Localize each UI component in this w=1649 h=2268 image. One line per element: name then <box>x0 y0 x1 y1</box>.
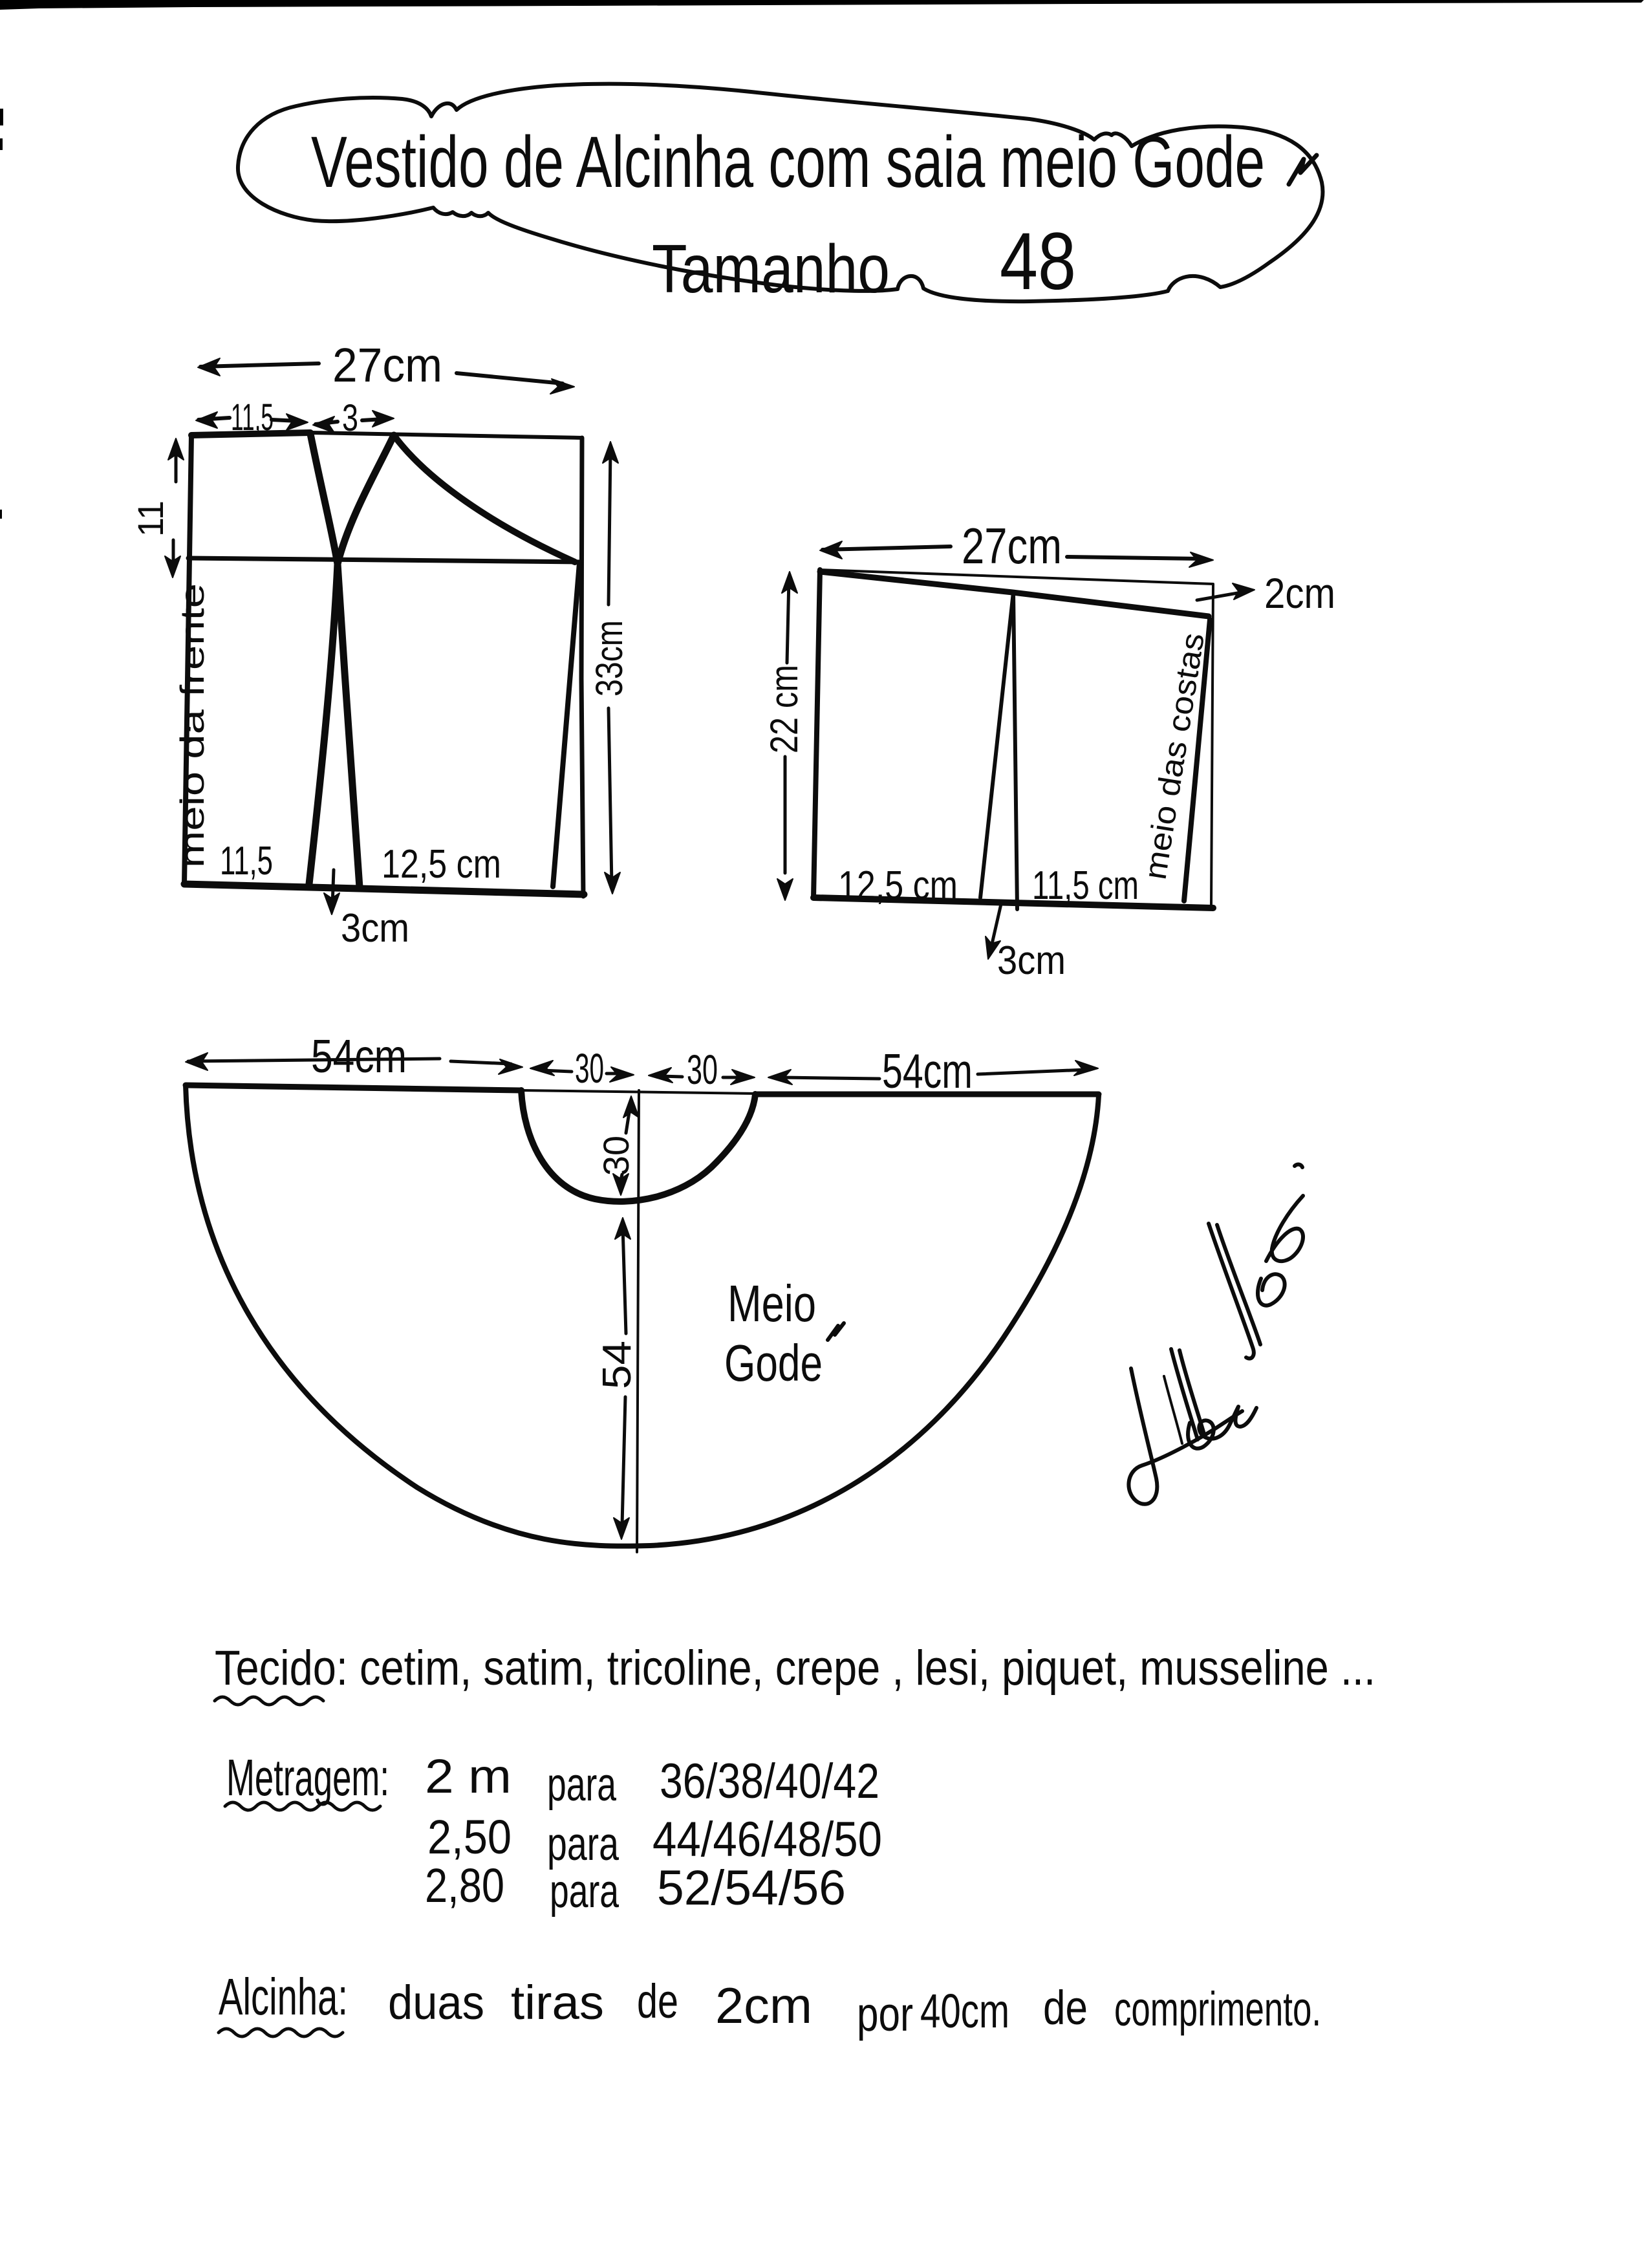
svg-text:36/38/40/42: 36/38/40/42 <box>660 1754 879 1809</box>
svg-text:por: por <box>857 1987 913 2041</box>
svg-text:48: 48 <box>1000 217 1076 307</box>
svg-text:54: 54 <box>595 1341 640 1389</box>
svg-text:11: 11 <box>130 501 171 537</box>
svg-text:30: 30 <box>687 1046 718 1093</box>
svg-text:para: para <box>550 1866 620 1917</box>
svg-text:11,5 cm: 11,5 cm <box>1032 863 1139 908</box>
svg-text:Tecido: cetim, satim, tricolin: Tecido: cetim, satim, tricoline, crepe ,… <box>215 1641 1375 1696</box>
svg-text:Gode: Gode <box>724 1334 823 1392</box>
svg-text:27cm: 27cm <box>962 517 1062 574</box>
svg-text:30: 30 <box>575 1045 604 1092</box>
svg-text:Alcinha:: Alcinha: <box>219 1968 348 2025</box>
svg-text:para: para <box>547 1759 617 1811</box>
svg-text:para: para <box>547 1819 620 1870</box>
svg-text:meio das costas: meio das costas <box>1138 631 1212 882</box>
svg-text:Metragem:: Metragem: <box>226 1749 389 1806</box>
svg-text:12,5 cm: 12,5 cm <box>838 863 958 908</box>
svg-text:Tamanho: Tamanho <box>652 231 890 307</box>
svg-text:2cm: 2cm <box>1264 569 1335 617</box>
svg-text:de: de <box>637 1974 678 2028</box>
svg-text:33cm: 33cm <box>588 620 630 697</box>
svg-text:54cm: 54cm <box>311 1031 407 1083</box>
svg-text:3cm: 3cm <box>341 906 409 951</box>
svg-text:30: 30 <box>596 1136 636 1176</box>
svg-text:40cm: 40cm <box>920 1984 1009 2038</box>
svg-text:52/54/56: 52/54/56 <box>657 1861 846 1916</box>
svg-text:2 m: 2 m <box>425 1749 512 1803</box>
svg-text:2cm: 2cm <box>715 1977 812 2034</box>
svg-text:54cm: 54cm <box>882 1044 973 1098</box>
svg-text:12,5 cm: 12,5 cm <box>382 842 501 887</box>
svg-text:tiras: tiras <box>511 1976 604 2029</box>
svg-text:2,50: 2,50 <box>427 1810 512 1864</box>
svg-text:meio da frente: meio da frente <box>174 583 211 868</box>
svg-text:Vestido de Alcinha com saia me: Vestido de Alcinha com saia meio Gode <box>311 122 1265 202</box>
svg-text:11,5: 11,5 <box>220 839 273 883</box>
svg-text:Meio: Meio <box>727 1275 816 1332</box>
svg-text:2,80: 2,80 <box>425 1859 504 1912</box>
svg-text:22 cm: 22 cm <box>762 665 806 753</box>
svg-text:de: de <box>1043 1981 1088 2035</box>
svg-text:3cm: 3cm <box>997 938 1066 983</box>
svg-text:duas: duas <box>388 1976 484 2029</box>
svg-text:27cm: 27cm <box>332 338 442 392</box>
svg-text:comprimento.: comprimento. <box>1114 1982 1321 2036</box>
svg-text:44/46/48/50: 44/46/48/50 <box>652 1812 882 1867</box>
